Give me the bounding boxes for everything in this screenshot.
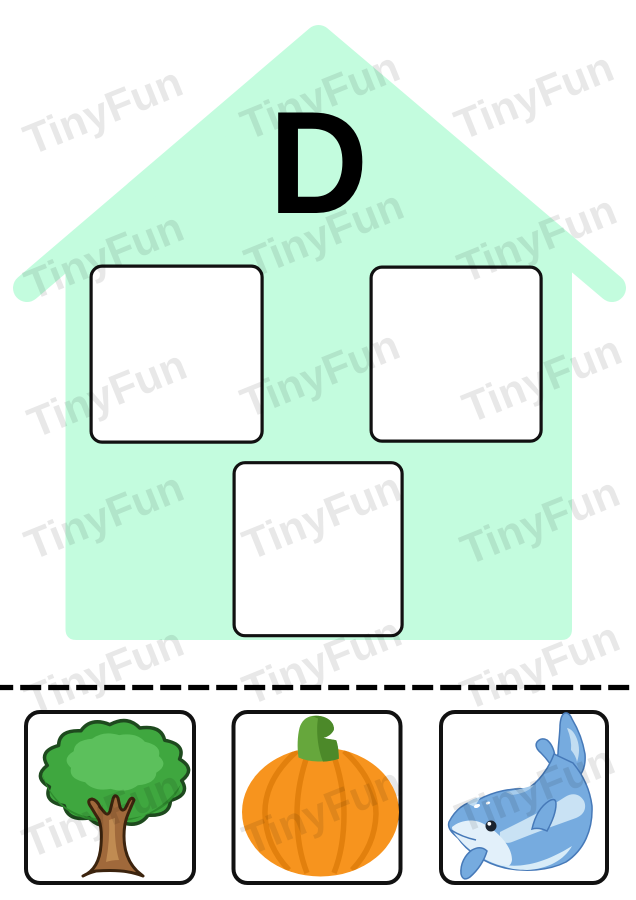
svg-text:TinyFun: TinyFun	[448, 43, 620, 150]
svg-text:TinyFun: TinyFun	[17, 58, 189, 165]
